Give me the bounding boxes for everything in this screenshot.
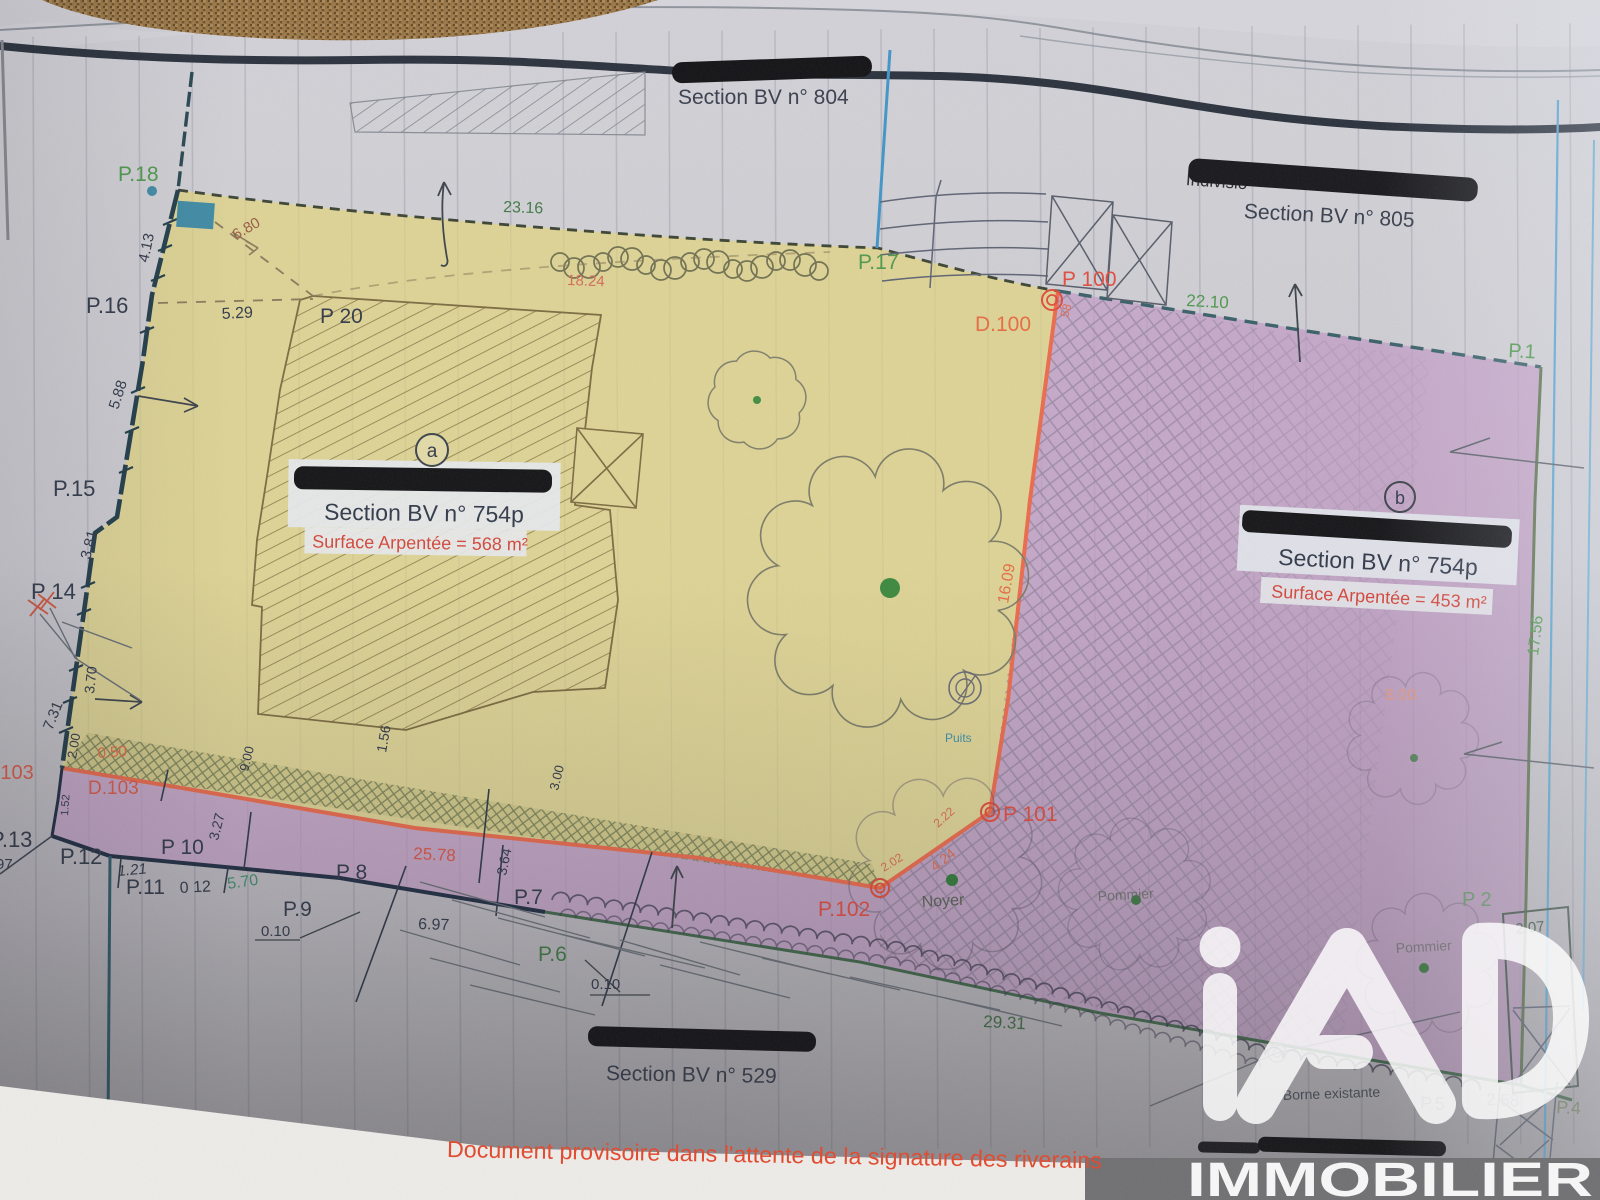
svg-text:IMMOBILIER: IMMOBILIER xyxy=(1187,1154,1593,1200)
